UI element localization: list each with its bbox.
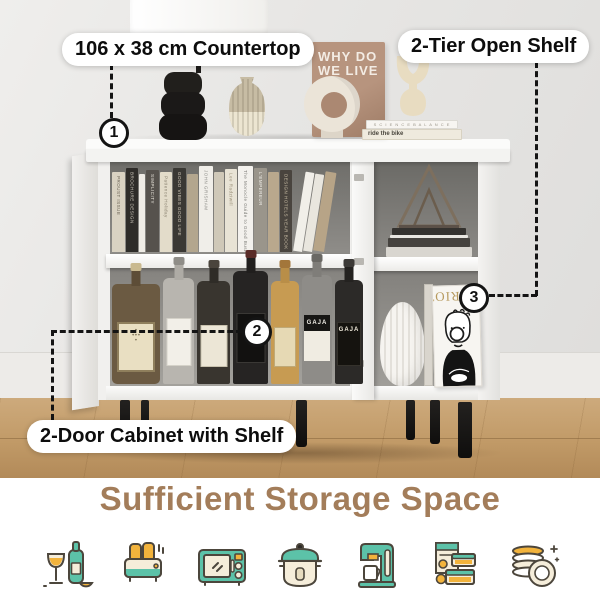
callout-label-cabinet: 2-Door Cabinet with Shelf [27,420,296,453]
door-hinge [354,258,364,265]
stacked-book [388,238,470,247]
book-spine: BROCHURE DESIGN [126,168,138,252]
toaster-icon [118,538,172,592]
stacked-book-spine-top: S C I E N C E B A L A N C E [366,120,458,129]
gaja-dark-bottle: GAJA [335,280,363,384]
triangle-sculpture [396,164,462,230]
lamp-shade [130,0,268,37]
feature-icon-row [0,534,600,596]
gaja-label-lower [304,331,330,361]
poster-text-line1: WHY DO [318,50,379,64]
cabinet-left-door-open [72,152,99,410]
callout-marker-2: 2 [242,317,272,347]
callout-line-open-shelf-v [535,62,538,296]
callout-marker-1: 1 [99,118,129,148]
stacked-book [386,247,472,257]
callout-label-open-shelf: 2-Tier Open Shelf [398,30,589,63]
food-containers-icon [428,538,482,592]
donut-vase [301,72,363,140]
wishbone-sculpture [388,56,438,120]
door-hinge [354,174,364,181]
microwave-icon [195,538,249,592]
product-marketing-image: WHY DO WE LIVE S C I [0,0,600,600]
ribbed-vase [225,72,269,140]
book-spine: Patience Holiday [160,172,172,252]
plates-icon [506,538,560,592]
cooking-pot-icon [273,538,327,592]
cabinet-leg [430,400,440,444]
book-spine [214,172,224,252]
book-spine [139,174,145,252]
gaja-label: GAJA [337,322,361,366]
book-spine: L'EMPEREUR [254,168,267,252]
gaja-label: GAJA [304,315,330,331]
book-spine: PROUST ISSUE [112,172,125,252]
bookshelf-row: PROUST ISSUE BROCHURE DESIGN SIMPLICITY … [112,166,348,252]
cabinet-leg [406,400,415,440]
whisky-bottle: ✦✦✦✦✦ [112,284,160,384]
book-spine [268,172,279,252]
white-wine-bottle [271,281,299,384]
headline-text: Sufficient Storage Space [0,480,600,518]
callout-line-open-shelf-h [489,294,537,297]
callout-line-countertop [110,64,113,118]
book-spine: GOOD VIBES GOOD LIFE [173,168,186,252]
coffee-machine-icon [351,538,405,592]
right-bottom-board [370,386,482,400]
cartoon-man-illustration [433,303,481,386]
bottle-label [274,327,296,367]
drinks-icon [40,538,94,592]
book-spine: Lee Radziwill [225,169,237,252]
cabinet-leg [296,400,307,447]
callout-line-cabinet-v [51,330,54,420]
right-middle-shelf-board [370,257,482,271]
stacked-book-spine-bottom: ride the bike [362,129,462,140]
countertop-surface [86,139,510,149]
book-spine: SIMPLICITY [146,170,159,252]
wine-bottle-collection: ✦✦✦✦✦ ⌂ [110,268,350,386]
callout-line-cabinet-h [51,330,242,333]
book-spine: JOHN GRISHAM [199,166,213,252]
cabinet-leg [458,402,472,458]
book-spine: The Monocle Guide to Good Business [238,166,253,252]
book-spine [187,174,198,252]
book-spine: DESIGN HOTELS YEAR BOOK [280,170,292,252]
product-photo: WHY DO WE LIVE S C I [0,0,600,478]
sculptural-lamp-base [158,70,208,140]
bottle-label [166,318,191,366]
callout-label-countertop: 106 x 38 cm Countertop [62,33,314,66]
callout-marker-3: 3 [459,283,489,313]
gaja-grey-bottle: GAJA [302,275,332,384]
left-bottom-board [106,386,354,400]
countertop-front-edge [86,149,510,162]
